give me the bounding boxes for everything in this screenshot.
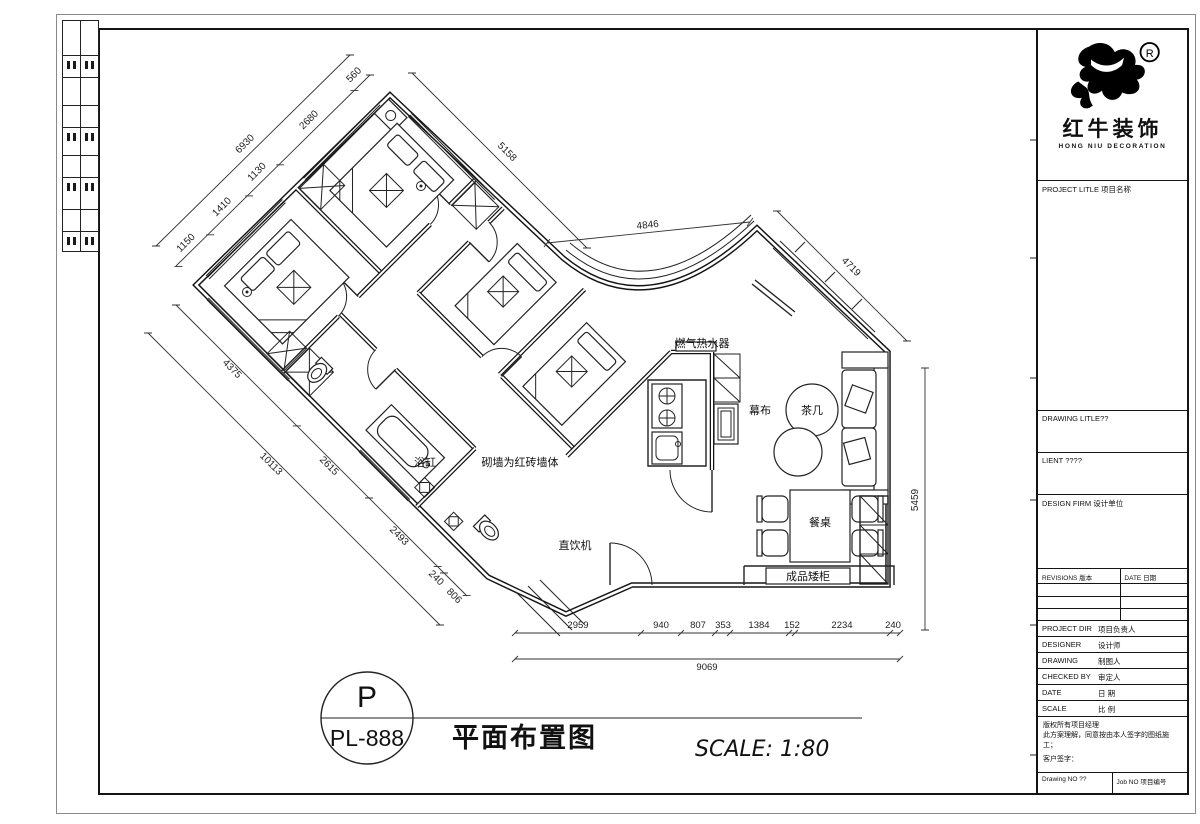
dim-5459: 5459 [910,488,921,511]
dim-152: 152 [784,620,800,631]
drawing-title-text: 平面布置图 [452,723,597,753]
project-title-row: PROJECT LITLE 项目名称 [1038,180,1187,410]
dim-1384: 1384 [748,620,769,631]
date-header: DATE 日期 [1124,572,1156,582]
dim-353: 353 [715,620,731,631]
dim-5158: 5158 [495,140,519,164]
bedroom3-furniture [455,243,556,344]
field-checked-by: CHECKED BY 审定人 [1038,668,1187,684]
dim-560: 560 [344,65,364,85]
bedroom2-furniture [212,219,363,370]
label-tea-table: 茶几 [801,404,823,417]
copyright-note: 版权所有项目经理 此方案理解，同意按由本人签字的图纸施工； 客户签字： [1038,716,1187,772]
brand-logo: R 红牛装饰 HONG NIU DECORATION [1038,30,1187,180]
sofa [842,352,888,504]
field-scale: SCALE 比 例 [1038,700,1187,716]
tea-table-icon [774,428,822,476]
toilet-icon [473,515,502,544]
scale-note: SCALE: 1:80 [695,737,829,762]
field-date: DATE 日 期 [1038,684,1187,700]
left-wing [195,92,667,564]
label-bathtub: 浴缸 [414,455,436,469]
drawing-number-row: Drawing NO ?? Job NO 项目编号 [1038,772,1187,793]
dim-4375: 4375 [220,357,244,381]
dim-240b: 240 [885,620,901,631]
dim-10113: 10113 [257,451,284,478]
dim-2615: 2615 [317,454,341,478]
field-project-dir: PROJECT DIR 项目负责人 [1038,620,1187,636]
label-dining-table: 餐桌 [809,515,831,529]
dim-4719: 4719 [839,255,863,279]
dim-2959: 2959 [567,620,588,631]
dim-1130: 1130 [246,160,269,183]
floor-plan-canvas: 燃气热水器 幕布 茶几 餐桌 成品矮柜 浴缸 砌墙为红砖墙体 直饮机 560 2… [0,0,1200,824]
label-water-heater: 燃气热水器 [675,336,730,350]
dim-2234: 2234 [831,620,852,631]
bedroom1-furniture [299,99,461,261]
label-brick-note: 砌墙为红砖墙体 [482,455,559,469]
bull-logo-icon: R [1058,34,1168,118]
dim-807: 807 [690,620,706,631]
dim-940: 940 [653,620,669,631]
dim-2493: 2493 [387,524,411,548]
drawing-title-row: DRAWING LITLE?? [1038,410,1187,452]
field-drawing: DRAWING 制图人 [1038,652,1187,668]
design-firm-row: DESIGN FIRM 设计单位 [1038,494,1187,568]
revisions-table: REVISIONS 版本 DATE 日期 [1038,568,1187,620]
label-water-dispenser: 直饮机 [559,538,592,552]
bubble-number: PL-888 [330,725,404,751]
job-no-cell: Job NO 项目编号 [1113,773,1188,793]
revisions-header: REVISIONS 版本 [1042,572,1092,582]
title-block: R 红牛装饰 HONG NIU DECORATION PROJECT LITLE… [1036,28,1189,795]
dim-1410: 1410 [210,195,234,219]
dim-2680: 2680 [297,108,321,132]
label-cabinet: 成品矮柜 [786,569,830,583]
registered-mark: R [1145,48,1153,60]
field-designer: DESIGNER 设计师 [1038,636,1187,652]
dim-9069: 9069 [696,662,717,673]
client-signature-line: 客户签字： [1043,755,1182,765]
dim-6930: 6930 [233,132,257,156]
dim-1150: 1150 [175,231,198,254]
bubble-letter: P [357,681,377,714]
label-screen: 幕布 [749,403,771,417]
drawing-title-area: P PL-888 平面布置图 SCALE: 1:80 [321,672,862,764]
drawing-no-cell: Drawing NO ?? [1038,773,1113,793]
client-row: LIENT ???? [1038,452,1187,494]
brand-name-cn: 红牛装饰 [1038,118,1187,141]
brand-name-en: HONG NIU DECORATION [1038,143,1187,150]
dim-4846: 4846 [636,219,660,232]
drawing-sheet: 燃气热水器 幕布 茶几 餐桌 成品矮柜 浴缸 砌墙为红砖墙体 直饮机 560 2… [0,0,1200,824]
